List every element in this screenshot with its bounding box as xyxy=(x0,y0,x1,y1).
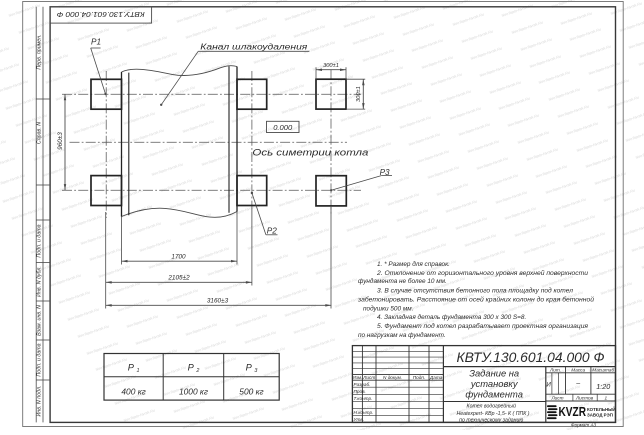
svg-text:Перв. примен.: Перв. примен. xyxy=(36,34,42,69)
svg-text:КВТУ.130.601.04.000 Ф: КВТУ.130.601.04.000 Ф xyxy=(457,350,605,365)
svg-text:Н.контр.: Н.контр. xyxy=(354,410,374,415)
svg-text:Формат А3: Формат А3 xyxy=(571,422,597,427)
svg-text:Т.контр.: Т.контр. xyxy=(354,396,373,401)
svg-text:Инв. N дубл.: Инв. N дубл. xyxy=(36,266,42,297)
svg-text:Масса: Масса xyxy=(571,367,585,372)
svg-text:N докум.: N докум. xyxy=(383,375,402,380)
svg-text:по нагрузкам на фундамент.: по нагрузкам на фундамент. xyxy=(358,331,446,339)
svg-text:2105±2: 2105±2 xyxy=(167,275,190,282)
svg-text:500 кг: 500 кг xyxy=(239,386,263,396)
svg-text:по техническому заданию: по техническому заданию xyxy=(459,418,523,424)
svg-text:Изм.: Изм. xyxy=(352,375,362,380)
svg-text:И: И xyxy=(546,381,551,388)
svg-text:Котел водогрейный: Котел водогрейный xyxy=(467,403,516,410)
svg-text:КВТУ.130.601.04.000 Ф: КВТУ.130.601.04.000 Ф xyxy=(57,10,145,19)
svg-text:P2: P2 xyxy=(267,227,277,236)
svg-text:фундамента не более 10 мм.: фундамента не более 10 мм. xyxy=(358,277,447,285)
svg-text:Разраб.: Разраб. xyxy=(354,382,371,387)
svg-text:Подп.: Подп. xyxy=(413,375,425,380)
svg-text:установку: установку xyxy=(470,378,519,389)
svg-text:1700: 1700 xyxy=(171,254,186,261)
svg-text:P1: P1 xyxy=(91,38,101,47)
svg-text:Подп. и дата: Подп. и дата xyxy=(36,224,42,257)
svg-text:1:20: 1:20 xyxy=(596,382,610,391)
svg-text:Лит.: Лит. xyxy=(549,367,561,372)
svg-text:ЗАВОД РЭП: ЗАВОД РЭП xyxy=(587,412,613,417)
svg-text:Задание на: Задание на xyxy=(469,368,519,379)
svg-text:Подп. и дата: Подп. и дата xyxy=(36,343,42,376)
svg-text:Лист: Лист xyxy=(362,375,375,380)
svg-text:KVZR: KVZR xyxy=(559,405,587,419)
svg-text:3. В случае отсутствия бетонно: 3. В случае отсутствия бетонного пола пл… xyxy=(377,286,573,294)
svg-text:400 кг: 400 кг xyxy=(121,386,145,396)
svg-text:1: 1 xyxy=(604,396,607,401)
svg-text:3160±3: 3160±3 xyxy=(207,298,229,305)
svg-text:1. * Размер для справок.: 1. * Размер для справок. xyxy=(377,260,450,268)
svg-text:5. Фундамент под котел разраба: 5. Фундамент под котел разрабатывает про… xyxy=(377,322,589,330)
svg-text:4. Закладная деталь фундамента: 4. Закладная деталь фундамента 300 х 300… xyxy=(377,313,526,321)
svg-text:забетонировать. Расстояние от: забетонировать. Расстояние от осей крайн… xyxy=(357,295,595,303)
svg-text:подушки 500 мм.: подушки 500 мм. xyxy=(363,305,413,313)
svg-text:Ось симетрии котла: Ось симетрии котла xyxy=(252,147,368,157)
svg-text:Дата: Дата xyxy=(429,375,443,380)
svg-text:1000 кг: 1000 кг xyxy=(179,386,208,396)
svg-text:Инв. N подл.: Инв. N подл. xyxy=(36,386,42,417)
svg-text:КОТЕЛЬНЫЙ: КОТЕЛЬНЫЙ xyxy=(587,407,616,412)
svg-text:Листов: Листов xyxy=(575,396,594,401)
svg-text:300±1: 300±1 xyxy=(356,86,362,102)
svg-text:Канал шлакоудаления: Канал шлакоудаления xyxy=(200,42,308,52)
svg-text:2. Отклонение от горизонтально: 2. Отклонение от горизонтального уровня … xyxy=(376,269,589,277)
svg-text:Справ. N: Справ. N xyxy=(36,122,42,144)
svg-text:фундамента: фундамента xyxy=(465,389,523,400)
svg-text:Heatexpert- КВр -1,5- К ( ППК: Heatexpert- КВр -1,5- К ( ППК ) xyxy=(457,411,530,417)
svg-text:Пров.: Пров. xyxy=(354,389,366,394)
svg-text:Масштаб: Масштаб xyxy=(592,367,614,372)
svg-text:Взам. инв. N: Взам. инв. N xyxy=(36,305,42,336)
svg-text:Лист: Лист xyxy=(550,396,563,401)
svg-text:0.000: 0.000 xyxy=(273,123,293,132)
svg-text:–: – xyxy=(575,380,580,387)
svg-text:Утв.: Утв. xyxy=(354,417,365,422)
svg-text:300±1: 300±1 xyxy=(323,63,339,69)
svg-text:960±3: 960±3 xyxy=(57,132,64,150)
